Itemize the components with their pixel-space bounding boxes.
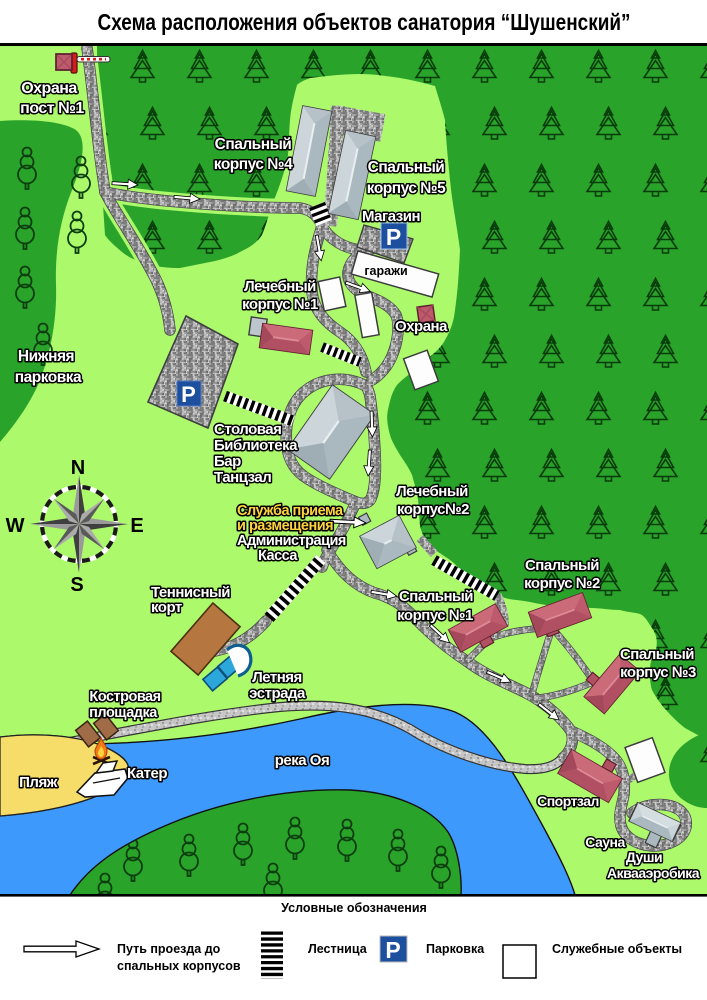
svg-text:корпус №1: корпус №1 (242, 296, 318, 313)
svg-text:Сауна: Сауна (585, 834, 625, 850)
svg-text:гаражи: гаражи (364, 264, 407, 278)
svg-text:Танцзал: Танцзал (214, 469, 271, 486)
svg-text:Условные обозначения: Условные обозначения (281, 901, 427, 915)
svg-text:Лечебный: Лечебный (244, 278, 316, 295)
svg-text:эстрада: эстрада (249, 685, 306, 702)
svg-text:W: W (6, 515, 25, 537)
svg-text:P: P (385, 937, 400, 963)
svg-text:корпус№2: корпус№2 (397, 501, 469, 518)
svg-text:корпус №5: корпус №5 (367, 180, 446, 197)
svg-text:корпус №4: корпус №4 (214, 156, 293, 173)
svg-text:Библиотека: Библиотека (214, 437, 298, 454)
svg-text:Охрана: Охрана (21, 80, 77, 97)
svg-text:Костровая: Костровая (89, 689, 160, 705)
svg-text:Лечебный: Лечебный (396, 483, 468, 500)
svg-text:Нижняя: Нижняя (18, 348, 74, 365)
svg-text:Служба приема: Служба приема (237, 503, 344, 519)
svg-text:Аквааэробика: Аквааэробика (607, 865, 700, 881)
svg-text:E: E (130, 515, 143, 537)
svg-text:корпус №2: корпус №2 (524, 575, 600, 592)
svg-text:Пляж: Пляж (19, 774, 58, 791)
svg-text:Спальный: Спальный (215, 136, 292, 153)
svg-text:Касса: Касса (258, 548, 298, 564)
svg-text:S: S (70, 574, 83, 596)
svg-text:Бар: Бар (214, 453, 241, 470)
svg-text:спальных корпусов: спальных корпусов (117, 959, 241, 973)
svg-text:Души: Души (626, 849, 662, 865)
svg-text:Служебные объекты: Служебные объекты (552, 942, 682, 956)
svg-text:река Оя: река Оя (275, 752, 329, 769)
svg-text:P: P (181, 382, 196, 407)
svg-text:P: P (386, 224, 401, 250)
svg-text:Парковка: Парковка (426, 942, 485, 956)
svg-text:и размещения: и размещения (237, 518, 333, 534)
svg-text:Столовая: Столовая (214, 421, 281, 438)
svg-text:Спальный: Спальный (525, 557, 599, 574)
svg-text:Администрация: Администрация (237, 533, 346, 549)
svg-text:Спортзал: Спортзал (537, 793, 599, 809)
svg-text:N: N (71, 457, 85, 479)
svg-text:Путь проезда до: Путь проезда до (117, 942, 221, 956)
svg-text:Лестница: Лестница (308, 942, 368, 956)
svg-text:Спальный: Спальный (620, 646, 694, 663)
svg-text:корт: корт (151, 599, 182, 616)
svg-text:Спальный: Спальный (399, 588, 473, 605)
svg-text:площадка: площадка (89, 705, 158, 721)
svg-text:Спальный: Спальный (368, 159, 445, 176)
svg-text:Катер: Катер (127, 765, 167, 782)
svg-text:Магазин: Магазин (362, 208, 420, 225)
svg-text:Схема расположения объектов са: Схема расположения объектов санатория “Ш… (98, 9, 631, 35)
svg-text:Летняя: Летняя (252, 669, 302, 686)
svg-text:пост №1: пост №1 (20, 100, 84, 117)
svg-text:корпус №1: корпус №1 (397, 607, 473, 624)
svg-text:Охрана: Охрана (395, 318, 448, 335)
svg-text:корпус №3: корпус №3 (620, 664, 696, 681)
svg-text:парковка: парковка (15, 369, 82, 386)
